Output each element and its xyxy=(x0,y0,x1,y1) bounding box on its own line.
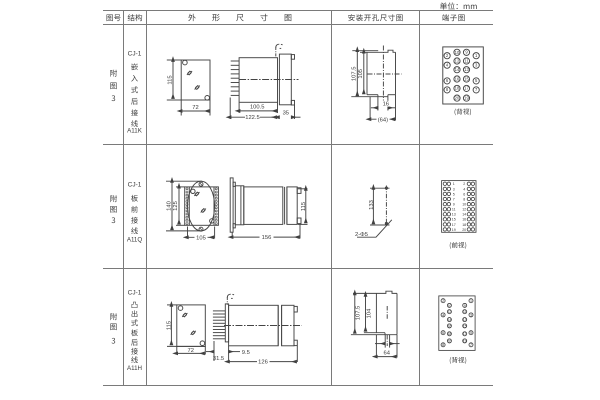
svg-text:31.5: 31.5 xyxy=(213,356,224,362)
svg-text:A11K: A11K xyxy=(127,127,143,134)
svg-text:122.5: 122.5 xyxy=(245,115,260,121)
svg-text:4: 4 xyxy=(463,187,465,191)
svg-text:19: 19 xyxy=(464,95,469,100)
svg-text:18: 18 xyxy=(447,332,451,336)
svg-text:5: 5 xyxy=(470,331,472,335)
svg-text:7: 7 xyxy=(470,343,472,347)
svg-text:105: 105 xyxy=(358,69,364,79)
svg-text:20: 20 xyxy=(462,228,466,232)
svg-text:13: 13 xyxy=(452,213,456,217)
svg-text:15: 15 xyxy=(464,76,469,81)
svg-text:14: 14 xyxy=(462,213,466,217)
svg-text:18: 18 xyxy=(462,223,466,227)
svg-text:14: 14 xyxy=(447,318,451,322)
svg-text:72: 72 xyxy=(192,105,198,111)
svg-text:20: 20 xyxy=(447,339,451,343)
svg-text:125: 125 xyxy=(173,201,179,211)
svg-text:CJ-1: CJ-1 xyxy=(128,51,142,58)
svg-text:15: 15 xyxy=(452,218,456,222)
svg-text:105: 105 xyxy=(196,235,206,241)
svg-text:115: 115 xyxy=(301,202,307,211)
svg-text:3: 3 xyxy=(475,63,478,68)
svg-text:107.5: 107.5 xyxy=(352,67,358,82)
svg-text:3: 3 xyxy=(453,187,455,191)
svg-text:19: 19 xyxy=(463,339,467,343)
svg-text:4: 4 xyxy=(442,313,444,317)
svg-text:8: 8 xyxy=(463,197,465,201)
svg-text:133: 133 xyxy=(369,200,375,210)
svg-text:115: 115 xyxy=(167,321,173,330)
svg-text:13: 13 xyxy=(464,67,469,72)
svg-text:8: 8 xyxy=(442,343,444,347)
svg-text:64: 64 xyxy=(383,351,390,357)
svg-text:2: 2 xyxy=(442,299,444,303)
svg-text:4: 4 xyxy=(446,63,449,68)
svg-text:9.5: 9.5 xyxy=(242,350,250,356)
svg-text:6: 6 xyxy=(463,192,465,196)
svg-text:104: 104 xyxy=(366,308,372,318)
svg-text:140: 140 xyxy=(167,201,173,211)
svg-text:6: 6 xyxy=(446,78,449,83)
svg-text:12: 12 xyxy=(447,310,451,314)
svg-text:72: 72 xyxy=(187,348,193,354)
svg-text:18: 18 xyxy=(455,86,460,91)
svg-text:A11Q: A11Q xyxy=(127,237,143,244)
svg-text:2: 2 xyxy=(446,53,449,58)
svg-text:115: 115 xyxy=(168,75,174,84)
svg-text:11: 11 xyxy=(452,208,456,212)
svg-text:10: 10 xyxy=(447,304,451,308)
svg-text:2: 2 xyxy=(463,182,465,186)
svg-text:16: 16 xyxy=(383,102,389,108)
svg-text:CJ-1: CJ-1 xyxy=(128,182,142,189)
svg-text:1: 1 xyxy=(470,299,472,303)
svg-text:1: 1 xyxy=(475,53,478,58)
svg-text:A11H: A11H xyxy=(127,365,142,372)
svg-text:17: 17 xyxy=(463,332,467,336)
svg-text:7: 7 xyxy=(475,87,478,92)
svg-text:17: 17 xyxy=(452,223,456,227)
svg-text:16: 16 xyxy=(455,76,460,81)
svg-text:7: 7 xyxy=(453,197,455,201)
svg-text:2-Φ5: 2-Φ5 xyxy=(355,232,368,238)
svg-text:16: 16 xyxy=(462,218,466,222)
svg-text:CJ-1: CJ-1 xyxy=(128,290,142,297)
svg-text:9: 9 xyxy=(465,50,468,55)
svg-text:20: 20 xyxy=(455,95,460,100)
svg-text:11: 11 xyxy=(463,310,467,314)
svg-text:19: 19 xyxy=(452,228,456,232)
svg-text:126: 126 xyxy=(258,360,268,366)
svg-text:15: 15 xyxy=(463,324,467,328)
svg-text:16: 16 xyxy=(447,324,451,328)
svg-text:14: 14 xyxy=(455,67,460,72)
svg-text:1: 1 xyxy=(453,182,455,186)
svg-text:6: 6 xyxy=(442,331,444,335)
svg-text:11: 11 xyxy=(464,58,469,63)
svg-text:5: 5 xyxy=(453,192,455,196)
svg-text:10: 10 xyxy=(462,203,466,207)
svg-text:3: 3 xyxy=(470,313,472,317)
svg-text:8: 8 xyxy=(446,87,449,92)
svg-text:156: 156 xyxy=(262,235,272,241)
svg-text:13: 13 xyxy=(463,318,467,322)
svg-text:9: 9 xyxy=(453,203,455,207)
svg-text:10: 10 xyxy=(455,50,460,55)
svg-text:107.5: 107.5 xyxy=(355,306,361,321)
svg-text:5: 5 xyxy=(475,78,478,83)
svg-text:(64): (64) xyxy=(378,117,388,123)
svg-text:12: 12 xyxy=(455,58,460,63)
svg-text:17: 17 xyxy=(464,86,469,91)
svg-text:9: 9 xyxy=(464,304,466,308)
svg-text:100.5: 100.5 xyxy=(250,105,265,111)
svg-text:35: 35 xyxy=(283,111,289,117)
svg-text:12: 12 xyxy=(462,208,466,212)
